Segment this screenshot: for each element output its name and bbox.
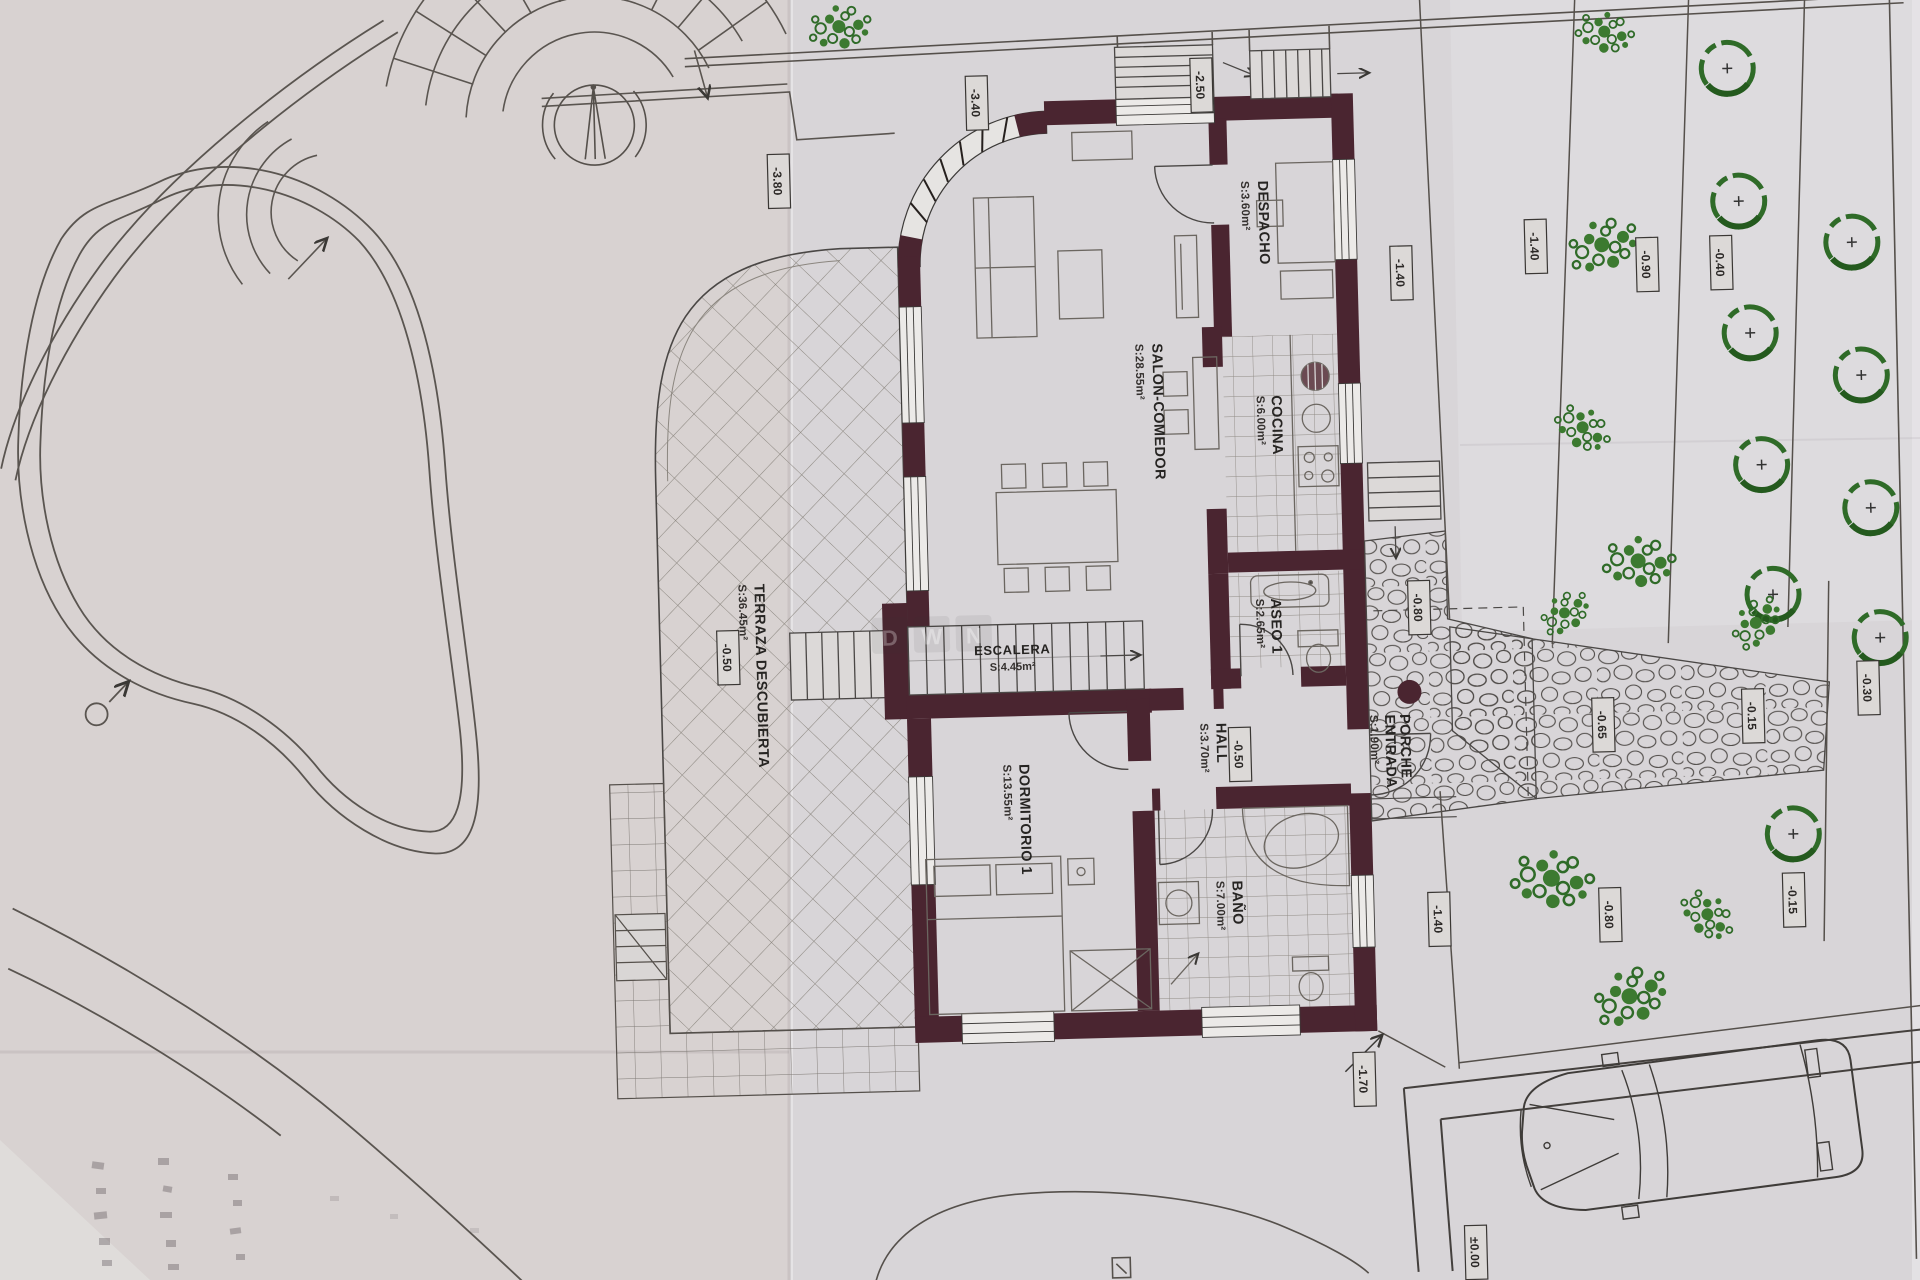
room-label-bano: BAÑO S:7.00m² [1213, 880, 1247, 930]
svg-text:-1.70: -1.70 [1356, 1065, 1371, 1094]
room-name: DORMITORIO 1 [1015, 764, 1034, 875]
window-bano-south [1202, 1005, 1301, 1038]
room-name: COCINA [1268, 395, 1286, 455]
bano-floor [1154, 806, 1354, 1011]
terrace-exterior-stair [790, 631, 887, 700]
room-name: BAÑO [1228, 880, 1247, 925]
svg-text:-3.80: -3.80 [770, 167, 785, 196]
room-name: ENTRADA [1381, 714, 1399, 788]
svg-text:-2.50: -2.50 [1193, 71, 1208, 100]
svg-text:±0.00: ±0.00 [1467, 1237, 1482, 1268]
watermark-letter: W [921, 624, 943, 650]
svg-text:-0.80: -0.80 [1410, 593, 1425, 622]
room-area: S:28.55m² [1132, 344, 1145, 400]
watermark-letter: D [882, 625, 899, 650]
terrace-step-block [615, 913, 667, 980]
elevation-marker: -1.40 [1524, 219, 1547, 274]
elevation-marker: -0.30 [1857, 661, 1880, 716]
elevation-marker: -2.50 [1190, 58, 1213, 113]
window-despacho [1333, 159, 1358, 260]
room-area: S:2.65m² [1253, 599, 1266, 649]
svg-text:-0.50: -0.50 [1231, 740, 1246, 769]
room-name: ESCALERA [974, 641, 1051, 658]
window-cocina [1338, 383, 1362, 464]
elevation-marker: -0.15 [1782, 873, 1805, 928]
room-label-aseo: ASEO 1 S:2.65m² [1253, 598, 1284, 654]
svg-text:-0.30: -0.30 [1860, 674, 1875, 703]
elevation-marker: -0.40 [1710, 235, 1733, 290]
window-terrace-1 [899, 307, 924, 424]
elevation-marker: -1.40 [1428, 892, 1451, 947]
room-name: DESPACHO [1254, 180, 1272, 265]
elevation-marker: -0.50 [1228, 727, 1251, 782]
room-area: S:6.00m² [1254, 396, 1267, 446]
window-terrace-2 [904, 477, 929, 592]
room-area: S:13.55m² [1000, 764, 1013, 820]
elevation-marker: -0.90 [1636, 237, 1659, 292]
room-area: S:7.00m² [1213, 881, 1226, 931]
svg-text:-1.40: -1.40 [1527, 232, 1542, 261]
elevation-marker: -1.70 [1353, 1052, 1376, 1107]
svg-text:-0.90: -0.90 [1638, 250, 1653, 279]
floor-plan-page: D W N DESPACHO S:3.60m² SALON-COMEDOR S:… [0, 0, 1920, 1280]
window-dormitorio-west [909, 776, 936, 885]
room-name: ASEO 1 [1267, 598, 1284, 654]
elevation-marker: -0.80 [1408, 580, 1431, 635]
elevation-marker: -0.65 [1592, 698, 1615, 753]
elevation-marker: -3.40 [965, 76, 988, 131]
room-area: S:3.70m² [1197, 723, 1210, 773]
room-area: S:3.60m² [1238, 181, 1251, 231]
elevation-marker: -0.50 [717, 630, 740, 685]
elevation-marker: ±0.00 [1464, 1225, 1487, 1280]
room-name: HALL [1212, 723, 1229, 764]
svg-text:-0.80: -0.80 [1601, 900, 1616, 929]
elevation-marker: -3.80 [767, 154, 790, 209]
room-area: S:1.90m² [1367, 715, 1380, 765]
svg-text:-1.40: -1.40 [1393, 259, 1408, 288]
svg-text:-0.15: -0.15 [1785, 886, 1800, 915]
svg-text:-3.40: -3.40 [968, 89, 983, 118]
elevation-marker: -0.80 [1599, 887, 1622, 942]
svg-text:-1.40: -1.40 [1431, 905, 1446, 934]
window-bano [1351, 875, 1375, 948]
elevation-marker: -1.40 [1390, 246, 1413, 301]
svg-text:-0.50: -0.50 [719, 643, 734, 672]
elevation-marker: -0.15 [1742, 689, 1765, 744]
svg-text:-0.65: -0.65 [1595, 711, 1610, 740]
window-dormitorio-south [962, 1011, 1055, 1043]
svg-text:-0.15: -0.15 [1744, 702, 1759, 731]
floor-plan-svg: D W N DESPACHO S:3.60m² SALON-COMEDOR S:… [0, 0, 1920, 1280]
room-area: S:4.45m² [990, 661, 1036, 674]
svg-text:-0.40: -0.40 [1712, 248, 1727, 277]
